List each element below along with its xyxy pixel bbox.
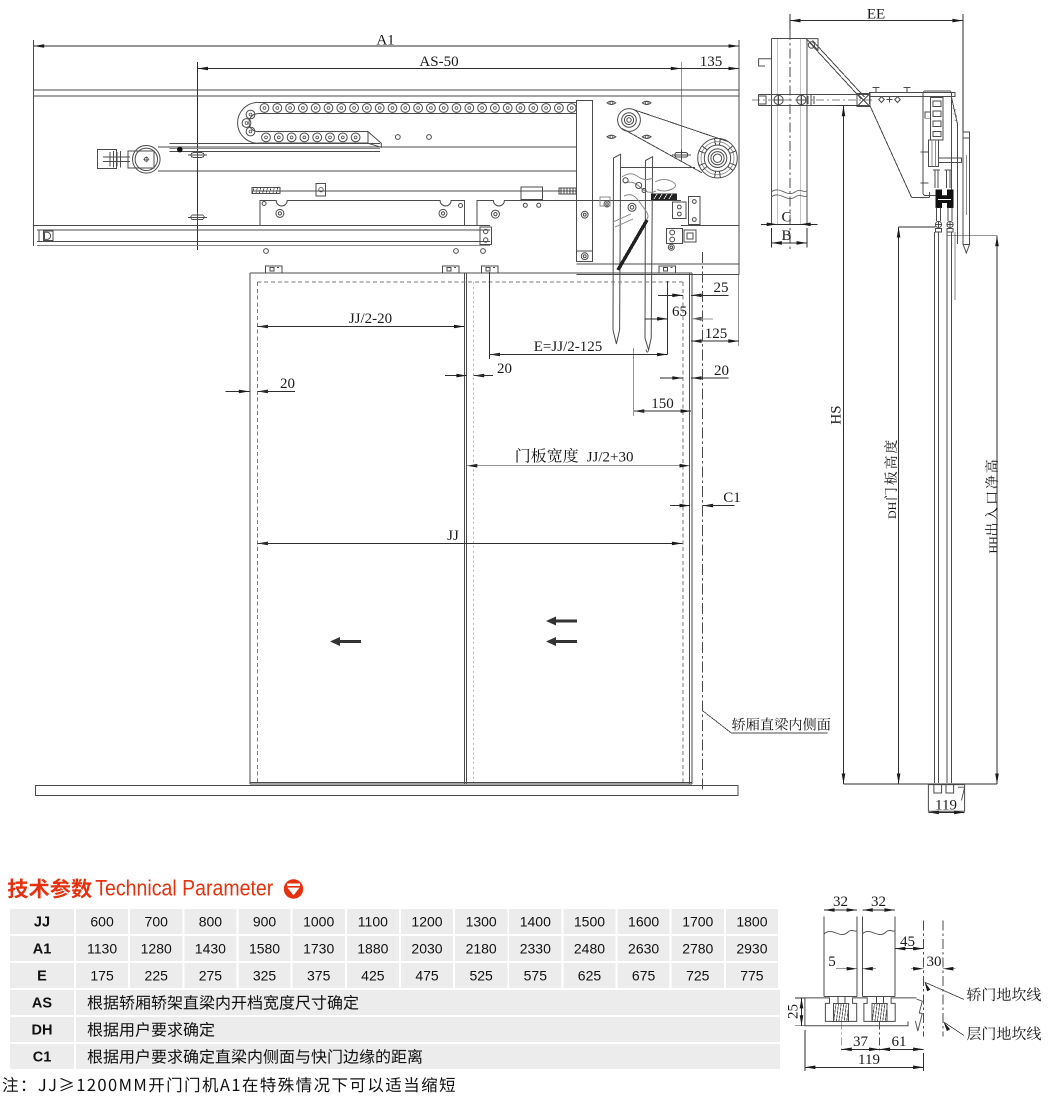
- svg-text:20: 20: [280, 376, 295, 392]
- svg-text:20: 20: [714, 363, 729, 379]
- svg-text:275: 275: [199, 968, 223, 984]
- svg-text:2180: 2180: [466, 941, 497, 957]
- svg-text:30: 30: [927, 954, 942, 970]
- svg-text:2930: 2930: [736, 941, 767, 957]
- svg-text:HS: HS: [829, 405, 845, 424]
- svg-text:700: 700: [145, 914, 169, 930]
- svg-text:JJ: JJ: [447, 528, 459, 544]
- svg-text:119: 119: [858, 1052, 880, 1068]
- svg-text:2780: 2780: [682, 941, 713, 957]
- svg-text:E=JJ/2-125: E=JJ/2-125: [534, 339, 602, 355]
- svg-text:E: E: [37, 969, 47, 985]
- svg-text:1430: 1430: [195, 941, 226, 957]
- svg-text:5: 5: [828, 954, 836, 970]
- svg-text:C: C: [781, 210, 791, 226]
- svg-text:EE: EE: [867, 7, 885, 23]
- svg-text:1130: 1130: [87, 941, 117, 957]
- svg-text:625: 625: [578, 968, 602, 984]
- svg-text:119: 119: [935, 798, 957, 814]
- svg-text:525: 525: [469, 968, 493, 984]
- svg-text:125: 125: [705, 326, 728, 342]
- svg-text:600: 600: [90, 914, 114, 930]
- svg-text:675: 675: [632, 968, 656, 984]
- svg-text:425: 425: [361, 968, 385, 984]
- svg-text:JJ/2+30: JJ/2+30: [587, 450, 634, 466]
- svg-text:2030: 2030: [411, 941, 442, 957]
- svg-text:475: 475: [415, 968, 439, 984]
- svg-text:A1: A1: [376, 33, 394, 49]
- svg-text:Technical Parameter: Technical Parameter: [95, 876, 273, 901]
- svg-text:61: 61: [892, 1034, 907, 1050]
- svg-text:1580: 1580: [249, 941, 280, 957]
- svg-text:225: 225: [145, 968, 169, 984]
- svg-text:800: 800: [199, 914, 223, 930]
- svg-text:C1: C1: [33, 1050, 52, 1066]
- svg-text:1700: 1700: [682, 914, 713, 930]
- svg-text:1200: 1200: [411, 914, 442, 930]
- svg-text:1600: 1600: [628, 914, 659, 930]
- svg-text:150: 150: [651, 396, 674, 412]
- svg-text:JJ/2-20: JJ/2-20: [349, 311, 392, 327]
- svg-text:20: 20: [497, 361, 512, 377]
- svg-text:135: 135: [700, 54, 723, 70]
- svg-text:775: 775: [740, 968, 764, 984]
- svg-text:2630: 2630: [628, 941, 659, 957]
- svg-text:HH: HH: [986, 536, 1000, 554]
- svg-text:2330: 2330: [520, 941, 551, 957]
- svg-text:575: 575: [524, 968, 548, 984]
- svg-text:DH: DH: [32, 1023, 53, 1039]
- svg-text:1880: 1880: [357, 941, 388, 957]
- svg-text:B: B: [781, 228, 791, 244]
- svg-text:1800: 1800: [736, 914, 767, 930]
- svg-text:25: 25: [714, 280, 729, 296]
- svg-text:25: 25: [786, 1004, 802, 1019]
- svg-text:900: 900: [253, 914, 277, 930]
- svg-text:A1: A1: [33, 942, 52, 958]
- svg-text:JJ: JJ: [34, 915, 50, 931]
- svg-text:375: 375: [307, 968, 331, 984]
- svg-text:65: 65: [672, 304, 687, 320]
- svg-text:AS: AS: [32, 996, 52, 1012]
- svg-text:DH: DH: [885, 501, 899, 519]
- svg-text:325: 325: [253, 968, 277, 984]
- svg-text:725: 725: [686, 968, 710, 984]
- svg-text:AS-50: AS-50: [419, 54, 458, 70]
- svg-text:175: 175: [90, 968, 114, 984]
- svg-text:37: 37: [853, 1034, 869, 1050]
- svg-text:1500: 1500: [574, 914, 605, 930]
- svg-text:1280: 1280: [141, 941, 172, 957]
- svg-text:2480: 2480: [574, 941, 605, 957]
- svg-text:32: 32: [871, 894, 886, 910]
- svg-text:1730: 1730: [303, 941, 334, 957]
- svg-text:1400: 1400: [520, 914, 551, 930]
- svg-text:C1: C1: [723, 490, 741, 506]
- svg-text:1000: 1000: [303, 914, 334, 930]
- svg-text:1100: 1100: [358, 914, 388, 930]
- svg-text:1300: 1300: [466, 914, 497, 930]
- svg-text:32: 32: [833, 894, 848, 910]
